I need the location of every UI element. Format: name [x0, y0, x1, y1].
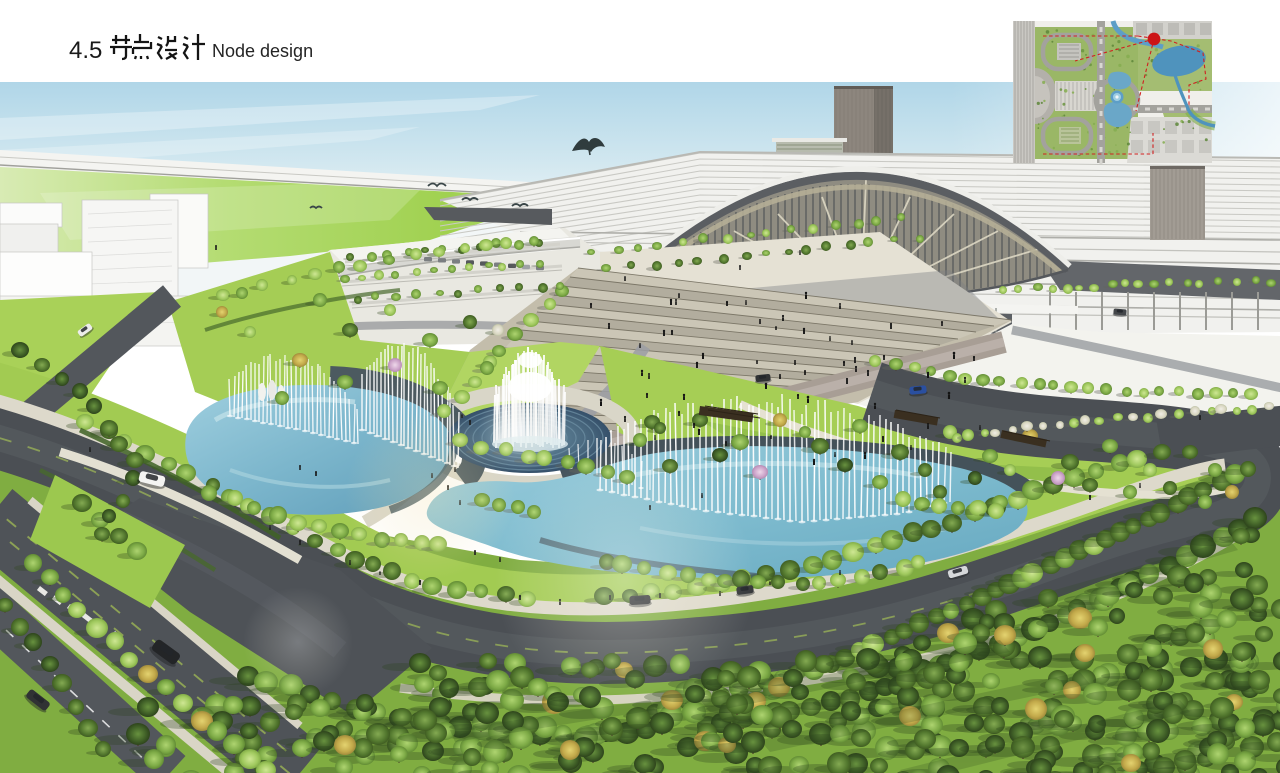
svg-text:4.5: 4.5: [69, 37, 102, 64]
svg-text:Node design: Node design: [212, 41, 313, 61]
